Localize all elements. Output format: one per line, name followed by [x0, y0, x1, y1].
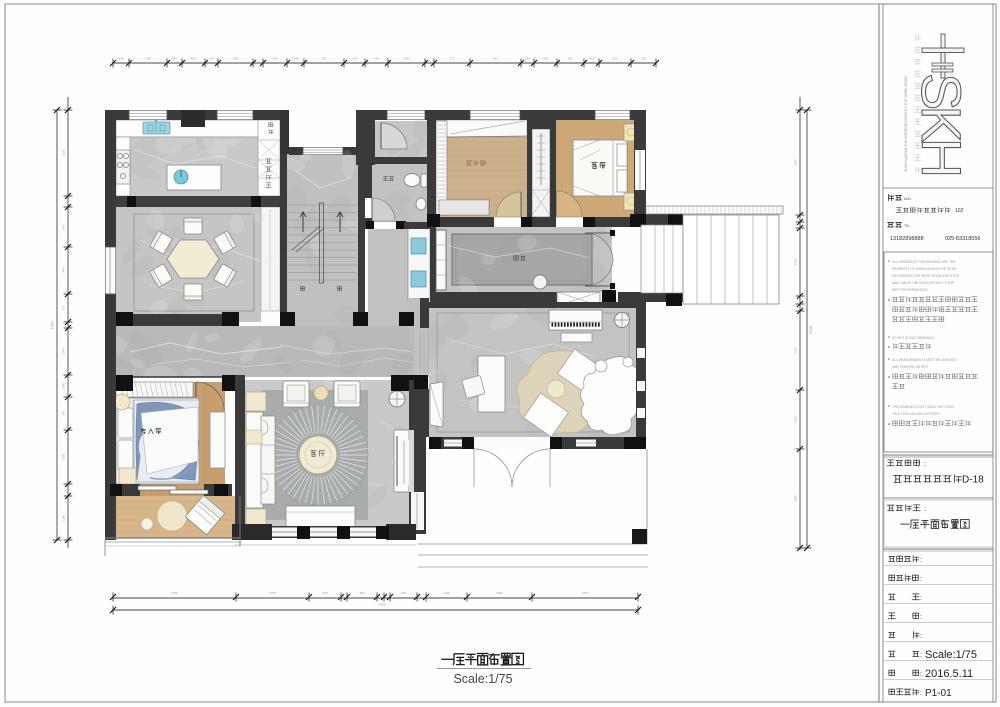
svg-text::: : — [924, 461, 926, 468]
svg-text::: : — [920, 576, 922, 583]
svg-text:025-83318556: 025-83318556 — [945, 236, 980, 242]
svg-text:ADD:: ADD: — [904, 197, 912, 201]
svg-text::: : — [920, 557, 922, 564]
svg-text::: : — [920, 614, 922, 621]
svg-text:11045: 11045 — [51, 320, 55, 329]
svg-text:3670: 3670 — [171, 591, 178, 595]
svg-text:TRUCTION UNLESS CERTIFIED: TRUCTION UNLESS CERTIFIED — [892, 412, 940, 416]
svg-text:3020: 3020 — [62, 149, 66, 156]
svg-text:2160: 2160 — [794, 258, 798, 265]
svg-text:2380: 2380 — [62, 382, 66, 389]
svg-text:360: 360 — [568, 57, 573, 61]
svg-text:2340: 2340 — [794, 347, 798, 354]
svg-text:980: 980 — [359, 591, 364, 595]
svg-text:240: 240 — [525, 57, 530, 61]
svg-text:1380: 1380 — [62, 514, 66, 521]
svg-text:2016.5.11: 2016.5.11 — [925, 668, 973, 680]
svg-text:1230: 1230 — [443, 591, 450, 595]
svg-text:775: 775 — [449, 57, 454, 61]
svg-text:280: 280 — [374, 57, 379, 61]
svg-text:Scale:1/75: Scale:1/75 — [453, 672, 512, 686]
svg-text:630: 630 — [209, 57, 214, 61]
svg-text:D-18: D-18 — [962, 475, 984, 486]
svg-text::: : — [920, 652, 922, 659]
svg-text:WRITTEN PERMISSION.: WRITTEN PERMISSION. — [892, 288, 928, 292]
svg-text:840: 840 — [118, 57, 123, 61]
svg-text:970: 970 — [322, 591, 327, 595]
svg-text:THE DRAWING IS NOT VALID FOR C: THE DRAWING IS NOT VALID FOR CONS — [892, 405, 954, 409]
svg-text:102: 102 — [955, 208, 964, 214]
svg-text:615: 615 — [612, 57, 617, 61]
svg-text:14530: 14530 — [378, 603, 387, 607]
svg-text:840: 840 — [172, 57, 177, 61]
svg-text:2390: 2390 — [496, 591, 503, 595]
svg-text:TEL:: TEL: — [904, 224, 911, 228]
svg-text:1640: 1640 — [62, 348, 66, 355]
svg-text::: : — [920, 671, 922, 678]
svg-text::: : — [920, 633, 922, 640]
svg-text::: : — [924, 506, 926, 513]
svg-text:2980: 2980 — [794, 495, 798, 502]
svg-text:1360: 1360 — [542, 57, 549, 61]
svg-text:ALL MEASUREMENTS MUST BE CHECK: ALL MEASUREMENTS MUST BE CHECKED — [892, 358, 958, 362]
svg-text:SHEN KAOHUA THE INTERIOR DESIG: SHEN KAOHUA THE INTERIOR DESIGNS THE WOR… — [904, 76, 908, 172]
svg-text:2270: 2270 — [269, 591, 276, 595]
svg-text:DO NOT SCALE DRAWINGS.: DO NOT SCALE DRAWINGS. — [892, 336, 935, 340]
svg-text:1660: 1660 — [794, 416, 798, 423]
svg-text:AND VERIFIED ON SITE: AND VERIFIED ON SITE — [892, 365, 928, 369]
svg-text:Scale:1/75: Scale:1/75 — [925, 649, 977, 661]
svg-text:1975: 1975 — [351, 57, 358, 61]
svg-text:1180: 1180 — [145, 57, 152, 61]
svg-text:2570: 2570 — [582, 591, 589, 595]
svg-text::: : — [920, 595, 922, 602]
svg-text:ALL DESIGNS IN THIS DRAWING AR: ALL DESIGNS IN THIS DRAWING ARE THE — [892, 260, 956, 264]
svg-text:100: 100 — [401, 591, 406, 595]
svg-text:1960: 1960 — [62, 453, 66, 460]
svg-text:AND CANNOT BE USED WITHOUT THE: AND CANNOT BE USED WITHOUT THEIR — [892, 281, 955, 285]
svg-text:13200: 13200 — [809, 325, 813, 334]
svg-text:13182898888: 13182898888 — [890, 236, 924, 242]
svg-text:1015: 1015 — [403, 57, 410, 61]
svg-text:610: 610 — [493, 57, 498, 61]
svg-text:2140: 2140 — [292, 57, 299, 61]
svg-text:495: 495 — [272, 57, 277, 61]
svg-text::: : — [920, 690, 922, 697]
svg-text:615: 615 — [191, 57, 196, 61]
svg-text:1180: 1180 — [232, 57, 239, 61]
svg-text:870: 870 — [589, 57, 594, 61]
svg-text:P1-01: P1-01 — [925, 688, 952, 699]
svg-text:240: 240 — [62, 411, 66, 416]
svg-text:200: 200 — [321, 57, 326, 61]
svg-text:IOR DESIGNS THE WORK ROOM INST: IOR DESIGNS THE WORK ROOM INSTITUTE — [892, 274, 959, 278]
svg-text:PROPERTY OF SHEN KAOHUA THE IN: PROPERTY OF SHEN KAOHUA THE INTER — [892, 267, 957, 271]
svg-text:1440: 1440 — [62, 267, 66, 274]
svg-text:630: 630 — [641, 57, 646, 61]
svg-text:960: 960 — [62, 224, 66, 229]
svg-text:710: 710 — [62, 305, 66, 310]
svg-text:3125: 3125 — [794, 159, 798, 166]
